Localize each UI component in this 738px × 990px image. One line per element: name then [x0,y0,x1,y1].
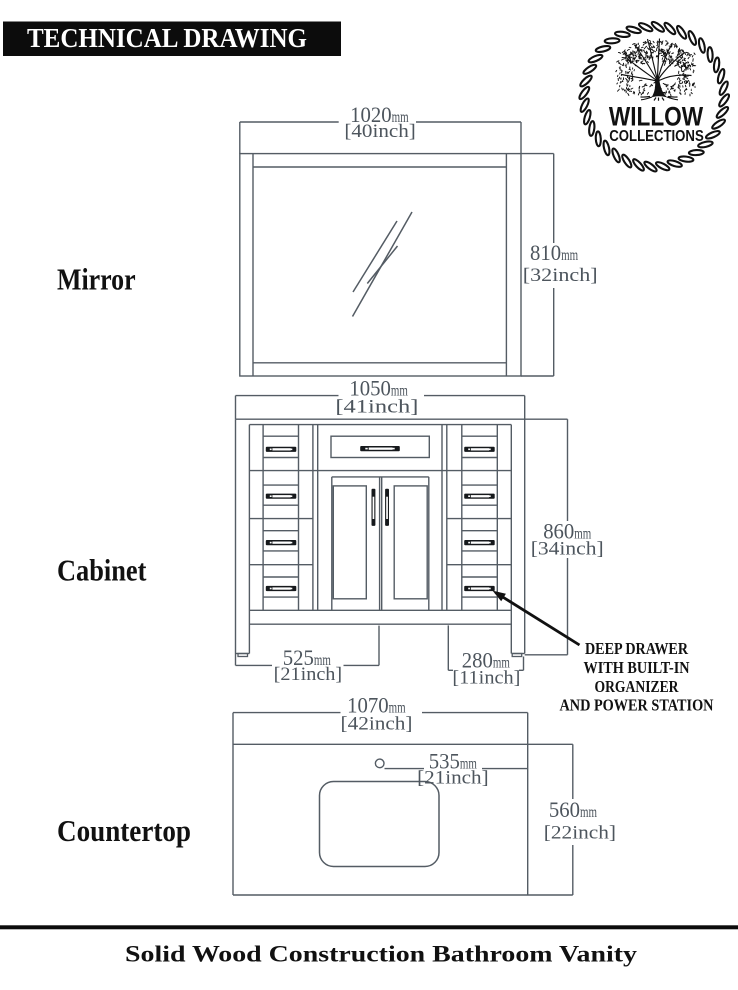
svg-text:DEEP DRAWER: DEEP DRAWER [585,639,689,658]
svg-text:AND POWER STATION: AND POWER STATION [560,696,714,715]
svg-text:Cabinet: Cabinet [57,554,147,588]
svg-text:[11inch]: [11inch] [452,668,520,688]
svg-text:[21inch]: [21inch] [417,768,489,788]
svg-text:1070mm: 1070mm [347,692,406,717]
svg-text:[40inch]: [40inch] [344,122,416,142]
svg-text:WITH BUILT-IN: WITH BUILT-IN [584,658,690,677]
svg-text:Mirror: Mirror [57,262,136,296]
svg-text:WILLOW: WILLOW [609,102,704,132]
svg-text:TECHNICAL DRAWING: TECHNICAL DRAWING [27,23,307,53]
svg-text:ORGANIZER: ORGANIZER [595,677,680,696]
svg-text:[32inch]: [32inch] [523,266,598,286]
svg-text:[42inch]: [42inch] [341,715,413,735]
svg-text:Countertop: Countertop [57,814,191,848]
svg-text:[22inch]: [22inch] [544,823,616,843]
svg-text:COLLECTIONS: COLLECTIONS [609,128,704,145]
svg-text:[41inch]: [41inch] [335,398,418,418]
svg-text:1050mm: 1050mm [349,375,408,400]
svg-text:810mm: 810mm [530,240,579,265]
svg-text:[21inch]: [21inch] [274,665,343,685]
svg-text:560mm: 560mm [549,797,598,822]
svg-text:[34inch]: [34inch] [531,540,604,560]
svg-text:Solid Wood Construction Bathro: Solid Wood Construction Bathroom Vanity [125,942,638,967]
